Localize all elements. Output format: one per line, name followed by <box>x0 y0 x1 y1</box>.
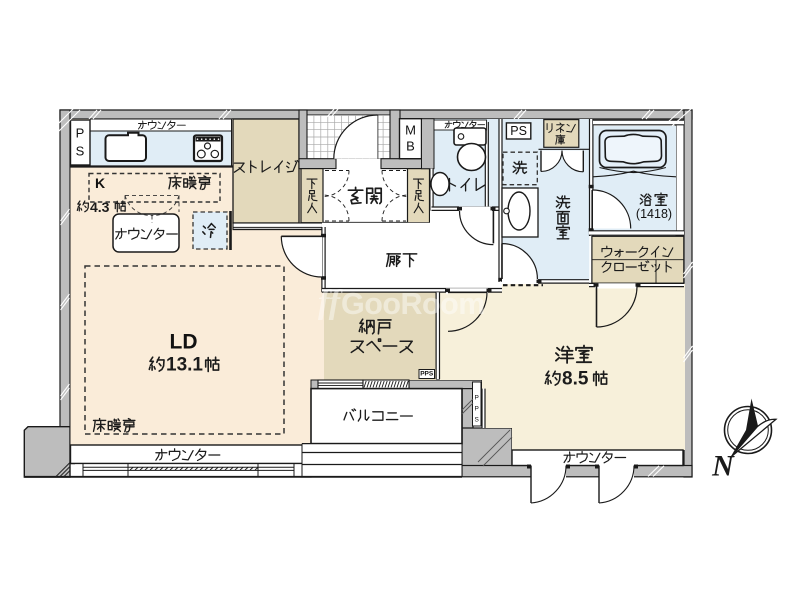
svg-text:B: B <box>406 139 415 154</box>
svg-text:ff: ff <box>318 284 344 321</box>
svg-text:S: S <box>475 417 480 424</box>
svg-text:LD: LD <box>170 331 198 354</box>
svg-text:(1418): (1418) <box>636 207 672 221</box>
svg-text:P: P <box>76 126 85 141</box>
svg-text:PS: PS <box>510 124 527 138</box>
svg-text:PPS: PPS <box>420 371 434 378</box>
svg-text:N: N <box>711 450 735 483</box>
svg-text:P: P <box>475 406 479 413</box>
svg-text:GooRoom: GooRoom <box>341 287 485 321</box>
svg-text:8.5: 8.5 <box>562 369 589 390</box>
svg-text:S: S <box>76 144 85 159</box>
svg-text:M: M <box>405 123 416 138</box>
svg-text:K: K <box>95 175 105 191</box>
svg-text:4.3: 4.3 <box>90 199 110 215</box>
svg-text:P: P <box>475 395 479 402</box>
svg-text:13.1: 13.1 <box>166 355 203 376</box>
